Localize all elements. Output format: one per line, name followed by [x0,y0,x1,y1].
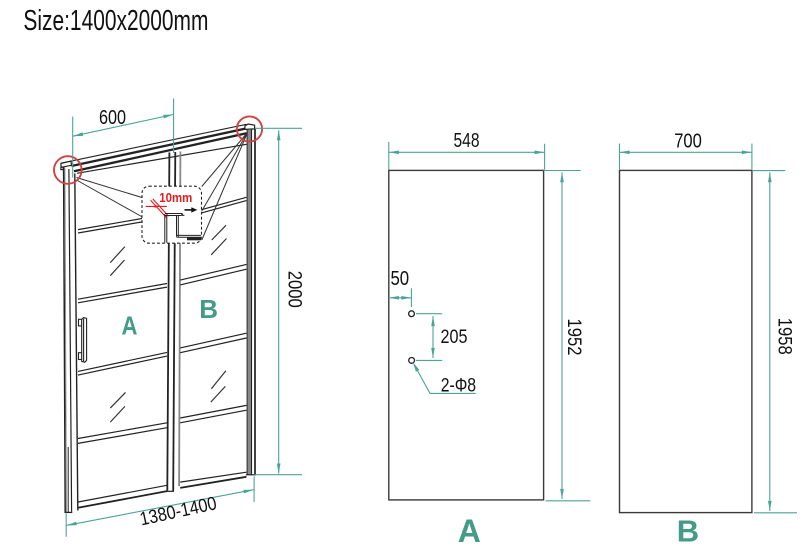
svg-text:1958: 1958 [774,318,795,355]
svg-text:700: 700 [674,131,702,153]
svg-text:10mm: 10mm [159,191,192,205]
svg-text:1952: 1952 [563,319,584,356]
svg-text:B: B [677,514,699,549]
svg-text:1380-1400: 1380-1400 [138,493,219,530]
svg-text:600: 600 [99,107,126,129]
svg-text:Size:1400x2000mm: Size:1400x2000mm [23,5,208,37]
svg-text:B: B [199,294,218,324]
svg-text:205: 205 [441,327,468,348]
svg-text:A: A [122,310,138,340]
svg-text:2000: 2000 [284,271,305,308]
svg-text:548: 548 [454,130,480,152]
svg-text:2-Φ8: 2-Φ8 [441,376,476,397]
svg-text:A: A [458,513,481,549]
svg-text:50: 50 [390,268,409,290]
